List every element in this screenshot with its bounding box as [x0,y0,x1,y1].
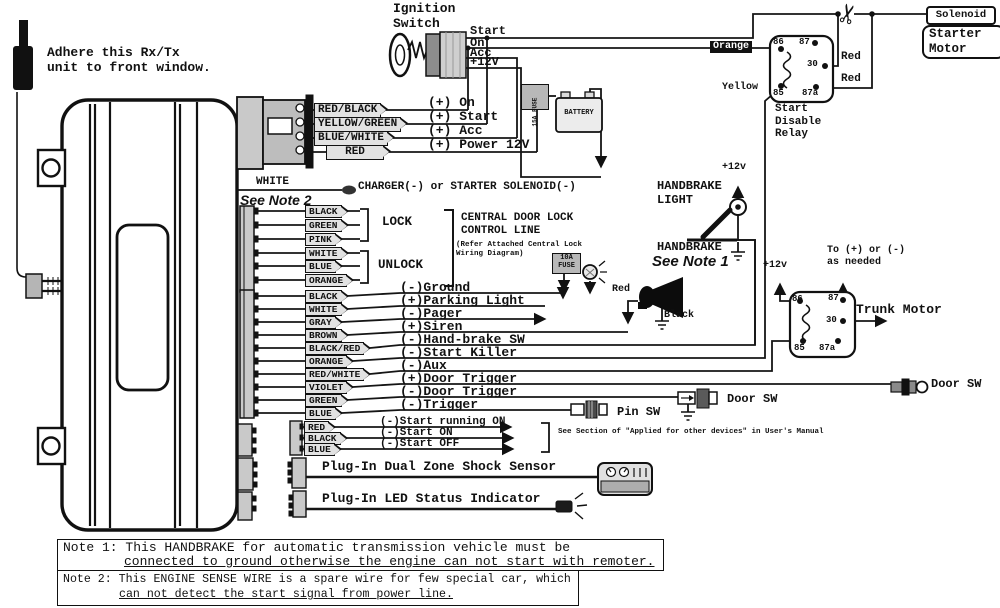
door-sw-right-label: Door SW [931,378,981,392]
wire-label: RED/BLACK [314,103,381,118]
wire-label: WHITE [305,303,342,316]
wire-label: BLACK [305,290,342,303]
relay-pin-85: 85 [773,88,784,98]
ignition-switch-icon [390,32,466,78]
scissors-icon: ✂ [832,0,867,28]
wire-function: (+) Power 12V [428,138,529,153]
siren-red-label: Red [612,284,630,296]
door-switch-mid-icon [678,389,717,408]
wire-label: BLUE [304,443,335,456]
wire-label: YELLOW/GREEN [314,117,401,132]
fuse-15a-text: 15A FUSE [533,101,540,127]
wire-label: BLUE/WHITE [314,131,388,146]
car-alarm-wiring-diagram: ✂ [0,0,1000,608]
red-wire-label: Red [841,73,861,86]
relay-pin-86: 86 [773,37,784,47]
wire-label: ORANGE [305,355,347,368]
led-indicator-icon [556,493,587,519]
shock-sensor-icon [598,463,652,495]
main-connector-icon [237,95,313,169]
note-2-box: Note 2: This ENGINE SENSE WIRE is a spar… [57,570,579,606]
engine-sense-function: CHARGER(-) or STARTER SOLENOID(-) [358,181,576,194]
wire-label: BLACK [305,205,342,218]
central-lock-heading: CENTRAL DOOR LOCK CONTROL LINE [461,212,573,237]
trunk-pin-87a: 87a [819,343,835,353]
wire-label: PINK [305,233,336,246]
ignition-label: Ignition Switch [393,2,455,32]
wire-label: VIOLET [305,381,347,394]
rx-unit-note: Adhere this Rx/Tx unit to front window. [47,46,211,76]
orange-wire-label: Orange [710,41,752,53]
wire-label: ORANGE [305,274,347,287]
wire-label: GREEN [305,219,342,232]
lug-icon [342,186,356,195]
note-1-line-2: connected to ground otherwise the engine… [124,555,655,570]
unlock-label: UNLOCK [378,258,423,272]
shock-sensor-label: Plug-In Dual Zone Shock Sensor [322,460,556,475]
wire-label: BROWN [305,329,342,342]
handbrake-light-icon [730,199,746,215]
wire-label: WHITE [305,247,342,260]
led-indicator-label: Plug-In LED Status Indicator [322,492,540,507]
yellow-wire-label: Yellow [722,82,758,94]
fuse-15a: 15A FUSE [521,84,549,110]
see-section-note: See Section of "Applied for other device… [558,428,824,437]
handbrake-light-label: HANDBRAKE LIGHT [657,180,722,208]
wire-label: BLACK/RED [305,342,364,355]
siren-black-label: Black [664,310,694,322]
engine-sense-wire: WHITE [256,176,289,189]
door-sw-mid-label: Door SW [727,393,777,407]
wire-function: (-)Trigger [400,398,478,413]
trunk-pin-87: 87 [828,293,839,303]
relay-pin-30: 30 [807,59,818,69]
main-unit [38,100,237,530]
solenoid-box: Solenoid [926,6,996,25]
pin-sw-label: Pin SW [617,406,660,420]
trunk-pin-86: 86 [792,294,803,304]
starter-motor-box: Starter Motor [922,25,1000,59]
battery-label: BATTERY [557,109,601,117]
edge-plugs-icon [238,421,306,520]
wire-function: (-)Start OFF [380,438,459,451]
relay-pin-87a: 87a [802,88,818,98]
wire-label: GRAY [305,316,336,329]
fuse-10a: 10A FUSE [552,253,581,274]
see-note-2: See Note 2 [240,192,312,208]
pin-switch-icon [571,401,607,418]
lock-label: LOCK [382,215,412,229]
note-2-line-1: Note 2: This ENGINE SENSE WIRE is a spar… [63,573,571,586]
handbrake-12v: +12v [722,162,746,174]
trunk-12v: +12v [763,260,787,272]
relay-pin-87: 87 [799,37,810,47]
door-switch-right-icon [891,379,928,395]
note-1-box: Note 1: This HANDBRAKE for automatic tra… [57,539,664,571]
see-note-1: See Note 1 [652,253,729,270]
trunk-pin-85: 85 [794,343,805,353]
wire-label: RED/WHITE [305,368,364,381]
red-wire-label: Red [841,51,861,64]
trunk-motor-label: Trunk Motor [856,303,942,318]
trunk-to-label: To (+) or (-) as needed [827,245,905,268]
start-disable-relay-label: Start Disable Relay [775,103,821,141]
trunk-pin-30: 30 [826,315,837,325]
handbrake-lever-icon [687,210,737,240]
wire-label: GREEN [305,394,342,407]
parking-light-icon [583,261,607,283]
wire-label: BLUE [305,407,336,420]
note-2-line-2: can not detect the start signal from pow… [119,588,453,601]
wire-label: BLUE [305,260,336,273]
wire-label: RED [326,145,384,160]
ignition-pos-12v: +12V [470,56,499,70]
